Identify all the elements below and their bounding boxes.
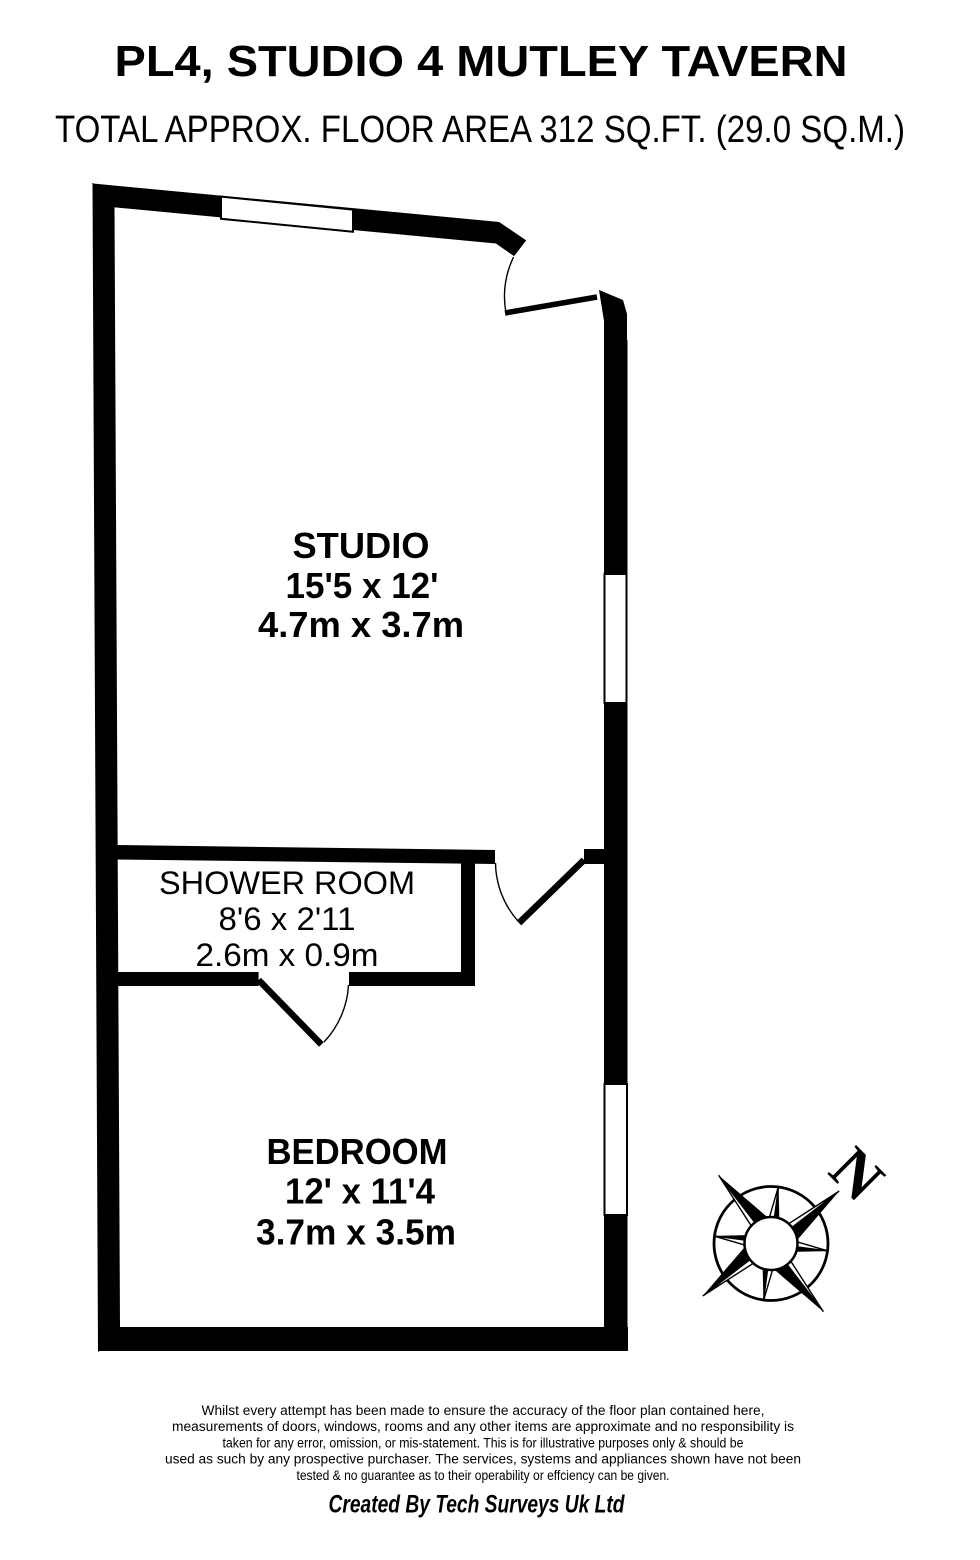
- svg-text:taken for any error, omission,: taken for any error, omission, or mis-st…: [223, 1435, 744, 1450]
- svg-text:STUDIO: STUDIO: [293, 525, 430, 566]
- svg-text:12' x 11'4: 12' x 11'4: [285, 1171, 435, 1212]
- svg-text:SHOWER ROOM: SHOWER ROOM: [159, 865, 415, 901]
- svg-text:measurements of doors, windows: measurements of doors, windows, rooms an…: [172, 1419, 794, 1434]
- svg-text:Whilst every attempt has been: Whilst every attempt has been made to en…: [202, 1403, 765, 1418]
- svg-text:4.7m x 3.7m: 4.7m x 3.7m: [258, 604, 464, 645]
- svg-text:tested & no guarantee as to th: tested & no guarantee as to their operab…: [297, 1468, 670, 1483]
- svg-text:8'6 x 2'11: 8'6 x 2'11: [219, 901, 356, 937]
- svg-text:2.6m x 0.9m: 2.6m x 0.9m: [196, 937, 379, 973]
- svg-text:15'5 x 12': 15'5 x 12': [286, 565, 439, 606]
- svg-text:TOTAL APPROX. FLOOR AREA 312 S: TOTAL APPROX. FLOOR AREA 312 SQ.FT. (29.…: [55, 109, 905, 151]
- svg-text:used as such by any prospectiv: used as such by any prospective purchase…: [165, 1452, 801, 1467]
- svg-text:3.7m x 3.5m: 3.7m x 3.5m: [256, 1212, 456, 1253]
- svg-text:BEDROOM: BEDROOM: [267, 1131, 448, 1172]
- svg-text:Created By Tech Surveys Uk Ltd: Created By Tech Surveys Uk Ltd: [329, 1491, 626, 1519]
- svg-text:PL4, STUDIO 4 MUTLEY TAVERN: PL4, STUDIO 4 MUTLEY TAVERN: [115, 37, 848, 86]
